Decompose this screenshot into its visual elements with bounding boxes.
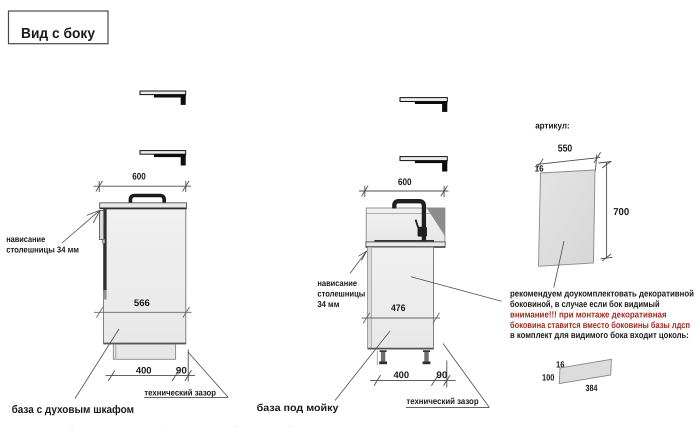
svg-text:400: 400 — [393, 370, 409, 381]
svg-text:технический зазор: технический зазор — [406, 396, 478, 406]
svg-text:566: 566 — [134, 298, 150, 309]
svg-text:нависание: нависание — [317, 278, 357, 288]
svg-text:700: 700 — [613, 207, 629, 218]
svg-text:столешницы 34 мм: столешницы 34 мм — [6, 244, 79, 254]
svg-text:550: 550 — [558, 144, 573, 155]
svg-text:технический зазор: технический зазор — [144, 387, 216, 397]
svg-text:384: 384 — [586, 383, 598, 393]
svg-text:рекомендуем доукомплектовать д: рекомендуем доукомплектовать декоративно… — [510, 289, 694, 299]
svg-text:боковиной, в случае если бок в: боковиной, в случае если бок видимый — [510, 299, 660, 309]
svg-text:в комплект для видимого бока в: в комплект для видимого бока входит цоко… — [510, 330, 689, 340]
svg-text:476: 476 — [391, 303, 406, 314]
svg-text:600: 600 — [398, 177, 412, 188]
svg-text:90: 90 — [436, 370, 447, 381]
svg-text:600: 600 — [132, 171, 146, 182]
svg-text:Вид с боку: Вид с боку — [21, 26, 95, 42]
svg-text:100: 100 — [542, 372, 555, 382]
svg-text:база под мойку: база под мойку — [257, 403, 339, 414]
svg-text:база с духовым шкафом: база с духовым шкафом — [12, 404, 134, 416]
svg-text:400: 400 — [136, 365, 152, 376]
svg-text:артикул:: артикул: — [535, 120, 570, 130]
svg-text:34 мм: 34 мм — [317, 299, 339, 309]
svg-text:столешницы: столешницы — [317, 288, 365, 298]
svg-text:внимание!!! при монтаже декора: внимание!!! при монтаже декоративная — [510, 310, 667, 320]
svg-text:90: 90 — [176, 365, 187, 376]
svg-text:нависание: нависание — [6, 234, 45, 244]
svg-text:16: 16 — [535, 163, 544, 173]
svg-text:боковина ставится вместо боков: боковина ставится вместо боковины базы л… — [510, 320, 690, 330]
